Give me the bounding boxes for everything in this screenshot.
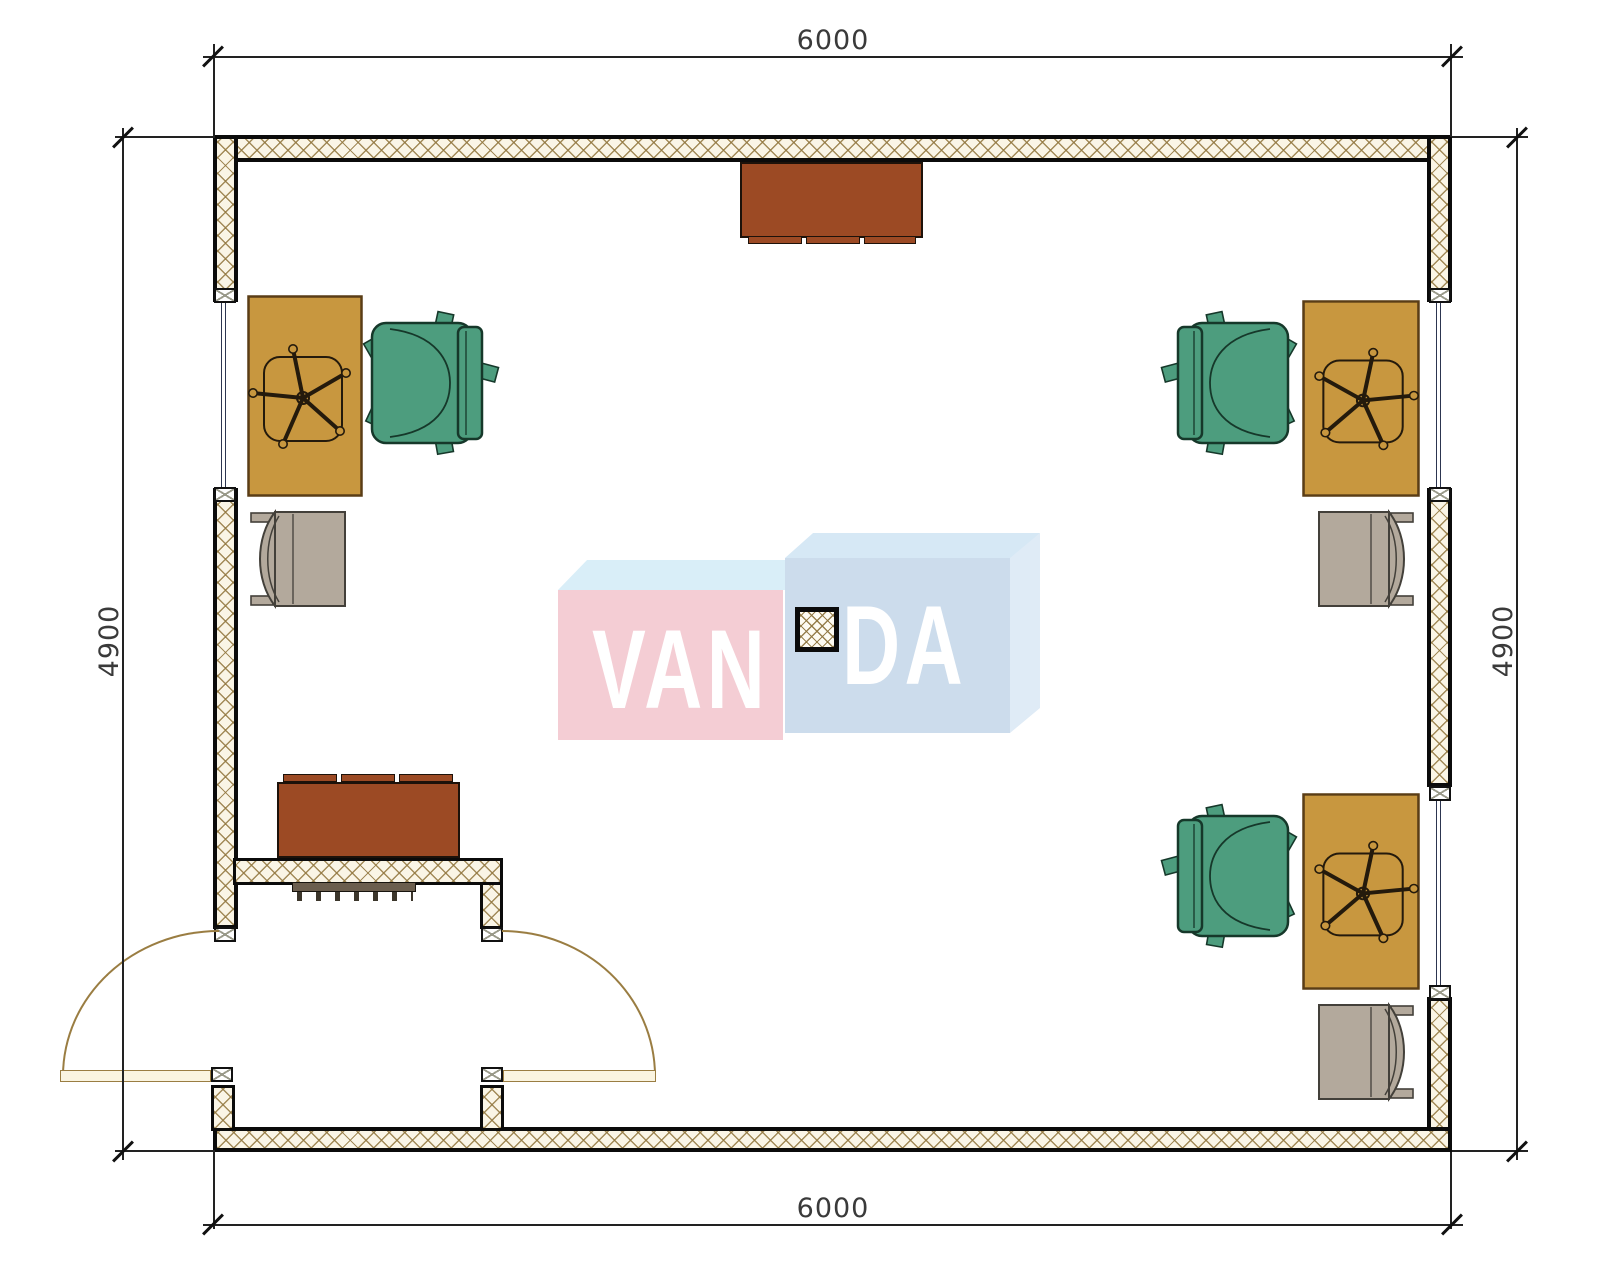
desk-top-right	[1302, 300, 1420, 497]
logo-text-van: VAN	[592, 614, 769, 726]
logo-text-da: DA	[842, 590, 967, 702]
armchair-left	[249, 508, 347, 610]
chair-green-bottom-right	[1162, 806, 1294, 948]
cabinet-top-tab	[864, 236, 916, 244]
window-right2-glazing	[1436, 800, 1441, 987]
window-right2-sill-top	[1429, 786, 1451, 801]
cabinet-vestibule-tab	[283, 774, 337, 782]
logo-right-box-side	[1010, 533, 1040, 733]
extension-line	[115, 1150, 215, 1152]
wall-bottom	[213, 1127, 1452, 1152]
floor-plan: VAN DA	[0, 0, 1600, 1280]
window-left-sill-bottom	[214, 487, 236, 502]
logo-right-box-top	[785, 533, 1040, 558]
wall-right-upper	[1427, 135, 1452, 302]
dimension-label-left: 4900	[97, 581, 123, 701]
window-right1-sill-bottom	[1429, 487, 1451, 502]
armchair-right-lower	[1317, 1001, 1415, 1103]
extension-line	[115, 136, 215, 138]
dimension-label-top: 6000	[773, 28, 893, 54]
vestibule-partition	[233, 858, 503, 885]
extension-line	[213, 1152, 215, 1229]
radiator-bar	[292, 882, 416, 892]
door-leaf-right	[503, 1070, 656, 1082]
dimension-label-bottom: 6000	[773, 1196, 893, 1222]
cabinet-vestibule	[277, 782, 460, 858]
cabinet-top-tab	[806, 236, 860, 244]
radiator-fins	[297, 892, 413, 901]
chair-green-top-right	[1162, 313, 1294, 455]
door-hinge-right	[481, 1067, 503, 1082]
door-leaf-left	[60, 1070, 211, 1082]
logo-left-box-top	[558, 560, 785, 590]
window-left-sill-top	[214, 288, 236, 303]
wall-top	[213, 135, 1452, 162]
dimension-line-top	[203, 56, 1463, 58]
door-jamb-left	[211, 1085, 235, 1131]
door-hinge-left	[211, 1067, 233, 1082]
window-right2-sill-bottom	[1429, 985, 1451, 1000]
wall-right-middle	[1427, 488, 1452, 787]
cabinet-top-tab	[748, 236, 802, 244]
cabinet-top	[740, 162, 923, 238]
window-left-glazing	[221, 302, 226, 488]
window-right1-glazing	[1436, 302, 1441, 488]
door-jamb-right	[480, 1085, 504, 1131]
dimension-line-bottom	[203, 1224, 1463, 1226]
cabinet-vestibule-tab	[341, 774, 395, 782]
dimension-label-right: 4900	[1491, 581, 1517, 701]
door-swing-arc-left	[62, 930, 219, 1076]
armchair-right-upper	[1317, 508, 1415, 610]
desk-bottom-right	[1302, 793, 1420, 990]
desk-top-left	[247, 295, 363, 497]
door-frame-right	[481, 927, 503, 942]
structural-column	[795, 607, 839, 652]
wall-left-upper	[213, 135, 238, 302]
vestibule-jut	[480, 882, 503, 929]
cabinet-vestibule-tab	[399, 774, 453, 782]
door-swing-arc-right	[502, 930, 656, 1076]
window-right1-sill-top	[1429, 288, 1451, 303]
extension-line	[1450, 1152, 1452, 1229]
chair-green-top-left	[366, 313, 498, 455]
